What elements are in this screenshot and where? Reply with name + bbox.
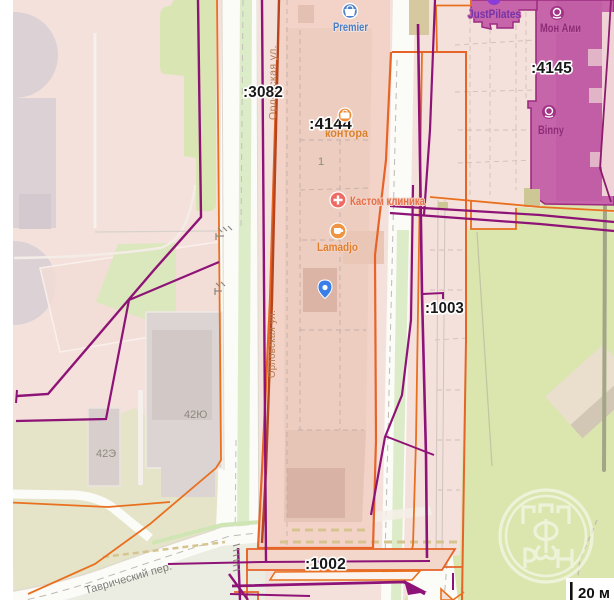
svg-text:Кастом клиника: Кастом клиника (350, 194, 425, 208)
svg-text::1003: :1003 (425, 300, 464, 317)
svg-text:42Ю: 42Ю (184, 409, 207, 421)
svg-text:Орловская ул.: Орловская ул. (266, 310, 278, 378)
svg-text:Binny: Binny (538, 123, 564, 137)
svg-text:1: 1 (318, 156, 324, 168)
svg-text:20 м: 20 м (578, 585, 610, 600)
svg-text:Мон Ами: Мон Ами (540, 21, 581, 35)
svg-text::1002: :1002 (305, 556, 346, 573)
svg-text:контора: контора (325, 126, 368, 140)
svg-text:JustPilates: JustPilates (468, 7, 521, 21)
svg-text:Орловская ул.: Орловская ул. (267, 45, 279, 120)
svg-text:Premier: Premier (333, 20, 368, 34)
svg-text::4145: :4145 (531, 60, 572, 77)
svg-text:Lamadjo: Lamadjo (317, 240, 358, 254)
svg-text::3082: :3082 (243, 84, 283, 101)
svg-text:42Э: 42Э (96, 448, 116, 460)
